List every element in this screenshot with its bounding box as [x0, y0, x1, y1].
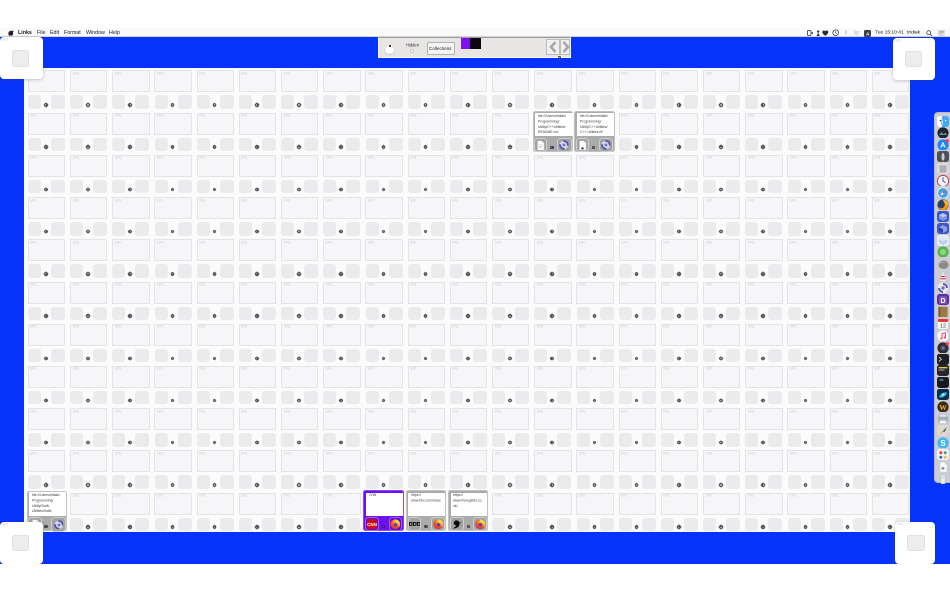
svg-text:D: D — [940, 298, 945, 305]
svg-text:A: A — [940, 141, 946, 150]
svg-text:W: W — [939, 403, 947, 412]
svg-text:CNN: CNN — [367, 522, 377, 527]
svg-text:S: S — [940, 439, 946, 448]
svg-text:12: 12 — [940, 323, 946, 329]
